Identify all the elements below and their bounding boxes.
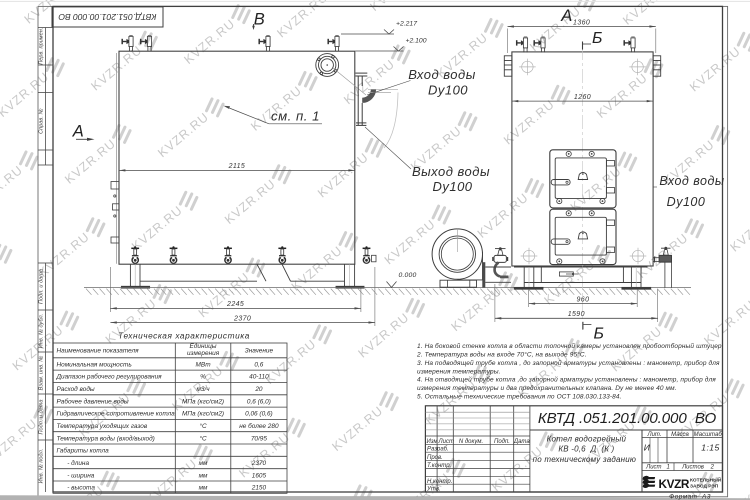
svg-text:Наименование показателя: Наименование показателя xyxy=(57,347,140,354)
svg-text:Н.контр.: Н.контр. xyxy=(427,479,452,485)
svg-text:Взам. инв. №: Взам. инв. № xyxy=(39,356,45,391)
svg-text:3. На подводящей трубе котла: 3. На подводящей трубе котла , до запорн… xyxy=(417,359,720,367)
svg-text:0,6: 0,6 xyxy=(254,361,263,368)
svg-text:Рабочее давление воды: Рабочее давление воды xyxy=(57,397,129,405)
svg-text:- высота: - высота xyxy=(57,485,96,492)
svg-text:Подп. и дата: Подп. и дата xyxy=(39,269,45,304)
svg-text:0.000: 0.000 xyxy=(398,272,416,279)
svg-text:1605: 1605 xyxy=(252,472,267,479)
svg-text:Утв.: Утв. xyxy=(426,487,441,493)
svg-text:Dy100: Dy100 xyxy=(428,83,468,98)
svg-text:Изм: Изм xyxy=(427,439,438,445)
svg-text:Лист: Лист xyxy=(438,439,454,445)
svg-text:- ширина: - ширина xyxy=(57,472,95,479)
svg-text:Значение: Значение xyxy=(245,347,274,354)
svg-text:Б: Б xyxy=(594,326,605,343)
svg-text:мм: мм xyxy=(199,460,208,467)
svg-text:Лист 1: Лист 1 xyxy=(645,465,670,471)
svg-text:МПа (кгс/см2): МПа (кгс/см2) xyxy=(182,398,224,405)
svg-text:Dy100: Dy100 xyxy=(432,179,472,194)
svg-text:Перв. примен.: Перв. примен. xyxy=(39,28,45,65)
svg-text:40-110: 40-110 xyxy=(249,374,269,381)
svg-text:Т.контр.: Т.контр. xyxy=(427,463,451,469)
svg-text:Техническая характеристика: Техническая характеристика xyxy=(118,331,250,341)
svg-text:0,6 (6,0): 0,6 (6,0) xyxy=(247,398,271,405)
svg-text:Дата: Дата xyxy=(513,439,530,445)
svg-text:70/95: 70/95 xyxy=(251,435,268,442)
svg-text:2245: 2245 xyxy=(226,301,244,308)
svg-text:5. Остальные технические треб: 5. Остальные технические требования по О… xyxy=(417,393,622,401)
svg-text:+2.100: +2.100 xyxy=(406,38,427,45)
svg-text:2150: 2150 xyxy=(251,485,267,492)
svg-text:1360: 1360 xyxy=(573,19,590,26)
svg-text:1:15: 1:15 xyxy=(701,443,720,453)
svg-text:А: А xyxy=(72,123,85,141)
svg-text:измерения: измерения xyxy=(187,350,220,357)
svg-text:МВт: МВт xyxy=(196,361,212,368)
svg-text:КВ -0,6 Д (К ): КВ -0,6 Д (К ) xyxy=(558,444,614,453)
svg-text:Температура уходящих газов: Температура уходящих газов xyxy=(57,422,148,430)
svg-text:960: 960 xyxy=(577,296,590,303)
svg-text:Диапазон рабочего регулировани: Диапазон рабочего регулирования xyxy=(56,373,163,381)
svg-text:- длина: - длина xyxy=(57,459,90,467)
svg-text:И: И xyxy=(644,443,651,453)
svg-text:Подп.: Подп. xyxy=(494,439,510,445)
svg-text:2370: 2370 xyxy=(251,460,267,467)
svg-text:не более 280: не более 280 xyxy=(239,422,279,430)
svg-text:Формат А3: Формат А3 xyxy=(669,493,711,500)
svg-text:Единицы: Единицы xyxy=(190,342,217,350)
svg-text:по техническому заданию: по техническому заданию xyxy=(533,455,636,464)
svg-text:Б: Б xyxy=(592,30,603,47)
svg-text:ЗАВОД РЭП: ЗАВОД РЭП xyxy=(690,484,719,490)
svg-text:N докум.: N докум. xyxy=(459,439,483,445)
svg-text:%: % xyxy=(200,374,206,381)
svg-text:А: А xyxy=(560,7,573,25)
svg-text:Лит.: Лит. xyxy=(646,432,661,438)
svg-text:мм: мм xyxy=(199,472,208,479)
svg-text:Вход воды: Вход воды xyxy=(659,174,724,188)
svg-text:см. п. 1: см. п. 1 xyxy=(271,109,320,124)
svg-text:Котел водогрейный: Котел водогрейный xyxy=(547,435,627,444)
svg-text:Масса: Масса xyxy=(671,432,689,438)
svg-text:МПа (кгс/см2): МПа (кгс/см2) xyxy=(182,411,224,418)
svg-text:Разраб.: Разраб. xyxy=(427,447,449,453)
svg-text:Справ. №: Справ. № xyxy=(39,108,45,133)
svg-text:Инв. № подл.: Инв. № подл. xyxy=(39,449,45,484)
svg-text:мм: мм xyxy=(199,485,208,492)
svg-text:измерения температуры.: измерения температуры. xyxy=(417,368,501,375)
svg-text:Листов 2: Листов 2 xyxy=(681,465,715,471)
svg-text:20: 20 xyxy=(254,386,263,393)
svg-text:Номинальная мощность: Номинальная мощность xyxy=(57,361,133,368)
svg-text:Масштаб: Масштаб xyxy=(694,432,723,438)
svg-text:Вход воды: Вход воды xyxy=(408,67,476,82)
svg-text:2. Температура воды на входе: 2. Температура воды на входе 70°С, на вы… xyxy=(416,351,587,359)
svg-text:Подп. и дата: Подп. и дата xyxy=(39,399,45,434)
svg-text:м3/ч: м3/ч xyxy=(196,386,210,393)
svg-text:Гидравлическое сопротивление к: Гидравлическое сопротивление котла xyxy=(57,410,176,418)
svg-text:Dy100: Dy100 xyxy=(667,195,706,209)
svg-text:2115: 2115 xyxy=(228,163,246,170)
svg-text:1. На боковой стенке котла в: 1. На боковой стенке котла в области топ… xyxy=(417,342,722,350)
svg-text:1260: 1260 xyxy=(574,94,591,101)
svg-text:2370: 2370 xyxy=(233,315,251,322)
svg-text:°С: °С xyxy=(199,422,207,430)
svg-text:+2.217: +2.217 xyxy=(396,21,417,28)
svg-text:4. На отводящей трубе котла ,: 4. На отводящей трубе котла ,до запорной… xyxy=(417,376,716,384)
svg-text:0,06 (0,6): 0,06 (0,6) xyxy=(245,411,273,418)
svg-text:1590: 1590 xyxy=(568,311,585,318)
svg-text:Выход воды: Выход воды xyxy=(412,164,490,179)
svg-text:KVZR: KVZR xyxy=(659,477,690,491)
svg-text:°С: °С xyxy=(199,434,207,442)
svg-text:Расход воды: Расход воды xyxy=(57,385,95,393)
svg-text:Пров.: Пров. xyxy=(427,455,443,461)
svg-text:КВТД.051.201.00.000 ВО: КВТД.051.201.00.000 ВО xyxy=(58,12,156,22)
svg-text:Температура воды (вход/выход): Температура воды (вход/выход) xyxy=(57,434,155,442)
svg-text:Инв. № дубл.: Инв. № дубл. xyxy=(39,314,45,348)
svg-text:В: В xyxy=(254,11,266,29)
svg-text:измерения температуры и два пр: измерения температуры и два предохраните… xyxy=(417,384,677,392)
svg-text:КВТД .051.201.00.000 ВО: КВТД .051.201.00.000 ВО xyxy=(538,410,717,427)
svg-text:Габариты котла: Габариты котла xyxy=(57,447,110,455)
